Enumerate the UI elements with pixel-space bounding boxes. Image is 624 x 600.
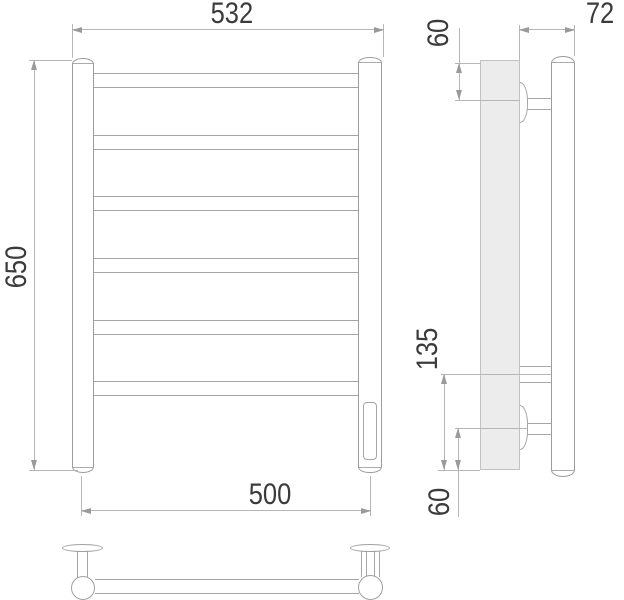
- front-right-post-cap-top: [359, 62, 381, 63]
- technical-drawing-canvas: 532 650 500: [0, 0, 624, 600]
- dim-135-line: [444, 374, 445, 470]
- plan-right-bracket-stem: [366, 551, 375, 577]
- dim-135-label: 135: [414, 324, 442, 375]
- dim-135-arrow-up: [441, 374, 447, 384]
- front-left-post-cap-top: [73, 63, 93, 64]
- dim-650-arrow-bottom: [31, 460, 37, 470]
- side-post-cap-bottom: [552, 470, 574, 471]
- dim-60bot-ext-upper: [455, 428, 527, 429]
- side-post: [551, 56, 575, 477]
- dim-532-arrow-right: [374, 27, 384, 33]
- dim-60top-ext-lower: [455, 100, 520, 101]
- upper-bracket-flange: [520, 82, 528, 123]
- plan-crossbar: [95, 579, 359, 594]
- dim-650-label: 650: [3, 242, 31, 293]
- front-crossbar-3: [94, 196, 358, 211]
- front-left-post: [72, 58, 94, 473]
- dim-650-line: [34, 60, 35, 470]
- dim-72-arrow-right: [565, 27, 575, 33]
- dim-500-label: 500: [248, 481, 292, 509]
- dim-60top-arrow-down: [456, 90, 462, 100]
- plan-right-post-section: [358, 575, 383, 600]
- dim-650-ext-bottom: [29, 470, 78, 471]
- front-right-post-cap-bottom: [359, 467, 381, 468]
- side-wall: [480, 60, 520, 470]
- dim-60top-arrow-up: [456, 63, 462, 73]
- dim-60bot-arrow-down: [455, 460, 461, 470]
- plan-right-bracket-flange: [350, 544, 390, 552]
- lower-bracket-stem: [527, 423, 552, 435]
- front-crossbar-4: [94, 258, 358, 273]
- upper-bracket-stem: [527, 98, 552, 110]
- dim-72-label: 72: [585, 0, 616, 28]
- front-crossbar-5: [94, 320, 358, 335]
- dim-60bot-label: 60: [426, 485, 454, 519]
- plan-left-bracket-stem: [77, 551, 88, 578]
- dim-60top-label: 60: [425, 16, 453, 50]
- dim-532-label: 532: [211, 0, 252, 28]
- plan-left-post-section: [71, 576, 95, 600]
- front-crossbar-1: [94, 73, 358, 88]
- plan-left-bracket-flange: [62, 544, 103, 552]
- front-crossbar-2: [94, 135, 358, 150]
- side-post-cap-top: [552, 62, 574, 63]
- dim-135-ext-upper: [441, 374, 551, 375]
- front-left-post-cap-bottom: [73, 467, 93, 468]
- dim-500-arrow-right: [361, 508, 371, 514]
- dim-500-arrow-left: [81, 508, 91, 514]
- dim-650-arrow-top: [31, 60, 37, 70]
- dim-60bot-line: [458, 428, 459, 517]
- dim-60bot-arrow-up: [455, 428, 461, 438]
- dim-135-arrow-down: [441, 460, 447, 470]
- dim-532-arrow-left: [72, 27, 82, 33]
- dim-500-line: [81, 510, 371, 511]
- dim-135-ext-lower: [438, 470, 480, 471]
- dim-72-arrow-left: [519, 27, 529, 33]
- heating-element-housing: [363, 402, 377, 460]
- front-crossbar-6: [94, 381, 358, 396]
